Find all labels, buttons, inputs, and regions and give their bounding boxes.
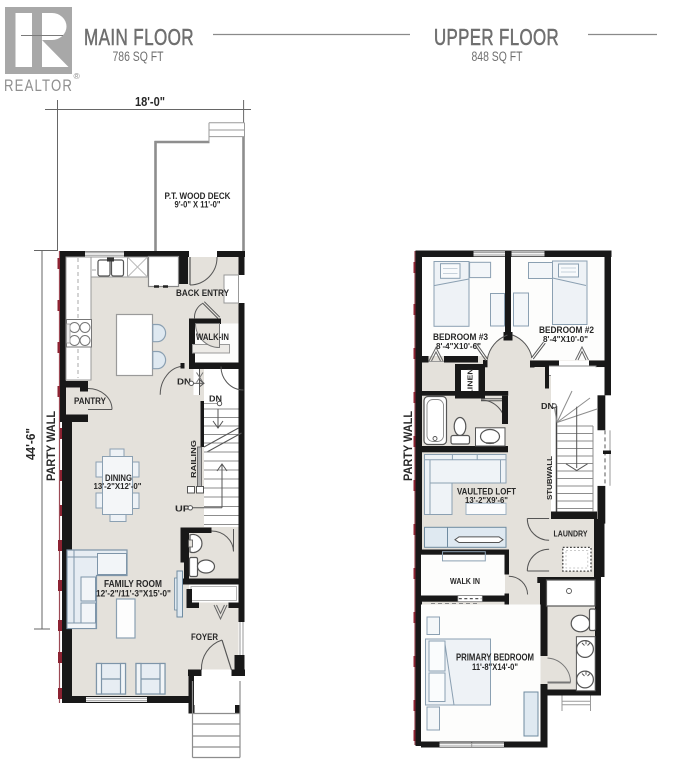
svg-text:9'-0" X 11'-0": 9'-0" X 11'-0" [175, 200, 221, 210]
svg-text:848 SQ FT: 848 SQ FT [472, 49, 523, 64]
svg-text:11'-8"X14'-0": 11'-8"X14'-0" [472, 662, 518, 672]
svg-text:REALTOR: REALTOR [4, 76, 73, 95]
svg-text:LINEN: LINEN [468, 369, 475, 395]
svg-text:WALK IN: WALK IN [450, 576, 480, 586]
svg-text:18'-0": 18'-0" [135, 94, 165, 109]
svg-text:786 SQ FT: 786 SQ FT [113, 49, 164, 64]
svg-text:®: ® [74, 71, 81, 81]
svg-text:STUBWALL: STUBWALL [545, 456, 554, 500]
svg-text:UPPER FLOOR: UPPER FLOOR [434, 24, 559, 50]
svg-text:PARTY WALL: PARTY WALL [44, 411, 58, 481]
svg-text:LAUNDRY: LAUNDRY [554, 529, 588, 539]
svg-text:FOYER: FOYER [191, 632, 218, 643]
svg-text:13'-2"X12'-0": 13'-2"X12'-0" [94, 481, 142, 491]
svg-text:MAIN FLOOR: MAIN FLOOR [84, 24, 194, 50]
svg-text:44'-6": 44'-6" [23, 428, 38, 460]
svg-text:RAILING: RAILING [189, 440, 198, 478]
svg-text:PARTY WALL: PARTY WALL [401, 411, 415, 481]
svg-text:12'-2"/11'-3"X15'-0": 12'-2"/11'-3"X15'-0" [96, 589, 171, 599]
svg-text:DN: DN [177, 377, 191, 387]
svg-text:WALK-IN: WALK-IN [196, 332, 229, 343]
svg-text:8'-4"X10'-6": 8'-4"X10'-6" [436, 341, 481, 351]
svg-text:PANTRY: PANTRY [74, 396, 107, 407]
svg-text:BACK ENTRY: BACK ENTRY [176, 288, 230, 299]
svg-text:8'-4"X10'-0": 8'-4"X10'-0" [543, 334, 588, 344]
svg-text:13'-2"X9'-6": 13'-2"X9'-6" [465, 495, 508, 505]
